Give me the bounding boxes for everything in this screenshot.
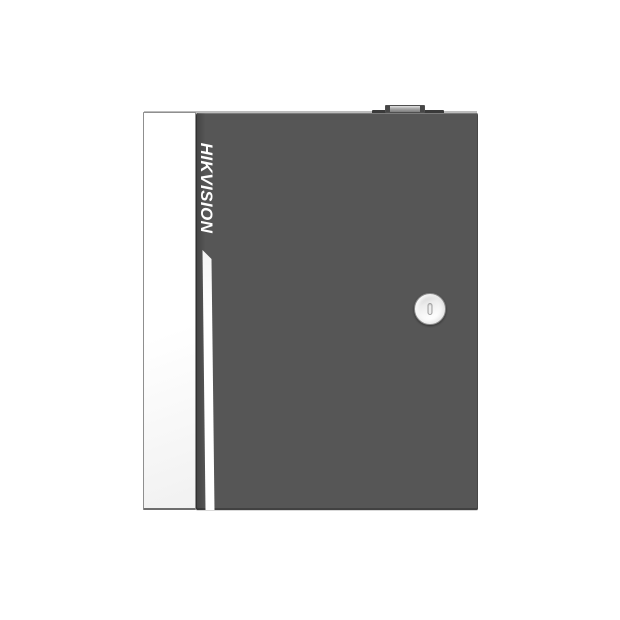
key-lock (414, 293, 446, 325)
cabinet-side-panel (143, 112, 196, 510)
brand-logo: HIKVISION (196, 143, 216, 234)
cabinet-door: HIKVISION (196, 113, 478, 510)
product-photo: HIKVISION (0, 0, 620, 620)
keyhole-icon (428, 303, 433, 315)
accent-stripe (202, 250, 215, 510)
top-conduit-tab (385, 105, 425, 113)
access-controller-cabinet: HIKVISION (143, 105, 478, 511)
